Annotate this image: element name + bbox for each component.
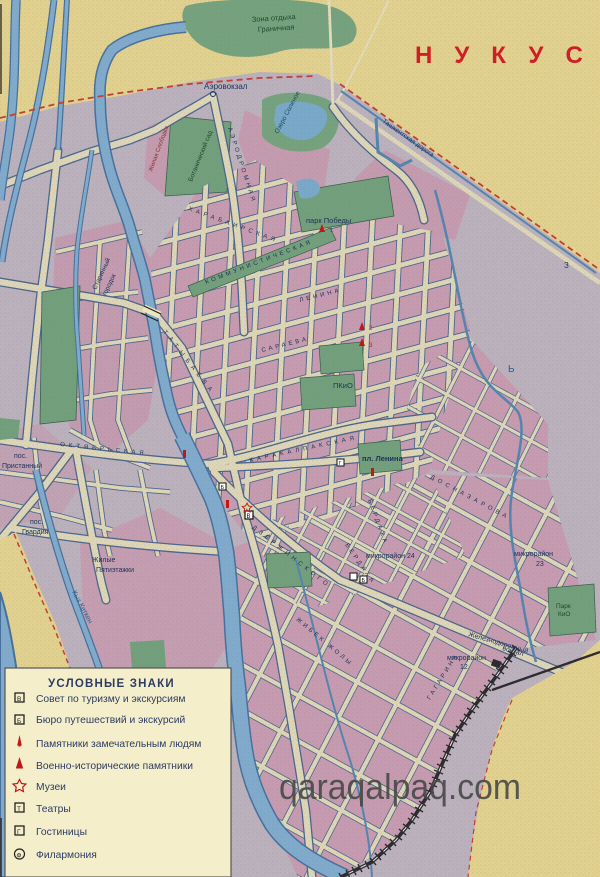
- svg-text:Музеи: Музеи: [36, 782, 66, 793]
- svg-text:микрорайон: микрорайон: [514, 550, 553, 558]
- svg-text:УСЛОВНЫЕ ЗНАКИ: УСЛОВНЫЕ ЗНАКИ: [48, 678, 175, 690]
- svg-text:23: 23: [536, 561, 544, 568]
- svg-text:В: В: [17, 696, 21, 703]
- svg-text:микрорайон 24: микрорайон 24: [366, 552, 415, 560]
- svg-text:пос.: пос.: [14, 453, 27, 460]
- svg-text:пос.: пос.: [30, 519, 43, 526]
- svg-text:Филармония: Филармония: [36, 850, 97, 861]
- svg-text:Г: Г: [339, 461, 342, 467]
- svg-text:Т: Т: [17, 806, 21, 813]
- svg-text:Театры: Театры: [36, 804, 71, 815]
- svg-text:qaraqalpaq.com: qaraqalpaq.com: [279, 766, 521, 807]
- svg-text:Военно-исторические памятники: Военно-исторические памятники: [36, 761, 193, 772]
- svg-text:Ь: Ь: [508, 364, 515, 375]
- svg-text:Пристанный: Пристанный: [2, 462, 42, 470]
- svg-text:КиО: КиО: [558, 611, 570, 618]
- svg-text:З: З: [564, 261, 569, 270]
- svg-text:ПКиО: ПКиО: [333, 381, 353, 390]
- svg-text:Б: Б: [221, 485, 225, 491]
- svg-text:12: 12: [460, 664, 468, 671]
- svg-text:НУКУС: НУКУС: [415, 42, 600, 69]
- svg-text:Гвардия: Гвардия: [22, 529, 49, 536]
- svg-text:пл. Ленина: пл. Ленина: [362, 454, 404, 463]
- svg-text:Б: Б: [17, 718, 21, 725]
- svg-text:Жилые: Жилые: [92, 557, 115, 564]
- svg-text:Совет по туризму и экскурсиям: Совет по туризму и экскурсиям: [36, 694, 185, 705]
- svg-text:Гостиницы: Гостиницы: [36, 827, 87, 838]
- svg-text:Г: Г: [17, 829, 21, 836]
- svg-text:В: В: [247, 514, 251, 520]
- svg-text:Б: Б: [362, 578, 366, 584]
- svg-text:Пятиэтажки: Пятиэтажки: [96, 567, 134, 574]
- svg-text:микрорайон: микрорайон: [447, 654, 486, 662]
- svg-text:Памятники замечательным людям: Памятники замечательным людям: [36, 739, 201, 750]
- svg-text:парк Победы: парк Победы: [306, 216, 351, 225]
- svg-text:Бюро путешествий и экскурсий: Бюро путешествий и экскурсий: [36, 715, 185, 726]
- svg-text:Ф: Ф: [17, 853, 22, 860]
- svg-text:Парк: Парк: [556, 603, 571, 610]
- svg-text:Аэровокзал: Аэровокзал: [204, 82, 248, 91]
